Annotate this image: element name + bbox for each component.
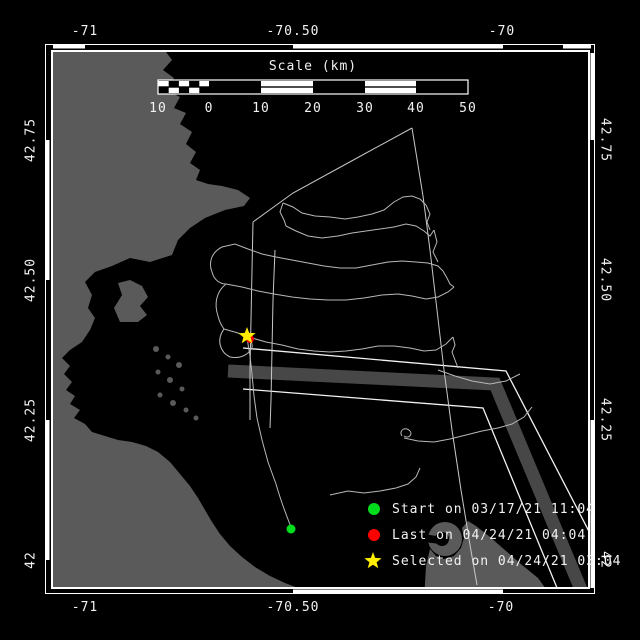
scale-tick-0: 10 [149,101,167,116]
scale-tick-6: 50 [459,101,477,116]
axis-label-bottom-0: -71 [72,600,98,615]
scale-tick-1: 0 [205,101,214,116]
drifter-track-map: -71 -70.50 -70 -71 -70.50 -70 42.75 42.5… [0,0,640,640]
scale-tick-5: 40 [407,101,425,116]
legend-green-circle-icon [368,503,380,515]
legend-label-last: Last on 04/24/21 04:04 [392,528,586,543]
legend-label-start: Start on 03/17/21 11:04 [392,502,595,517]
legend-label-selected: Selected on 04/24/21 03:04 [392,554,622,569]
scale-bar-title: Scale (km) [269,59,357,74]
axis-label-right-1: 42.50 [598,258,613,302]
axis-label-right-0: 42.75 [598,118,613,162]
axis-label-bottom-1: -70.50 [267,600,320,615]
scale-tick-3: 20 [304,101,322,116]
map-canvas [0,0,640,640]
axis-label-bottom-2: -70 [488,600,514,615]
axis-label-top-0: -71 [72,24,98,39]
axis-label-left-2: 42.25 [24,398,39,442]
axis-label-right-2: 42.25 [598,398,613,442]
map-start-marker [287,525,296,534]
legend-red-circle-icon [368,529,380,541]
scale-bar [158,80,468,94]
axis-label-left-3: 42 [24,551,39,569]
axis-label-left-1: 42.50 [24,258,39,302]
scale-tick-4: 30 [356,101,374,116]
axis-label-top-1: -70.50 [267,24,320,39]
scale-tick-2: 10 [252,101,270,116]
axis-label-left-0: 42.75 [24,118,39,162]
axis-label-top-2: -70 [489,24,515,39]
